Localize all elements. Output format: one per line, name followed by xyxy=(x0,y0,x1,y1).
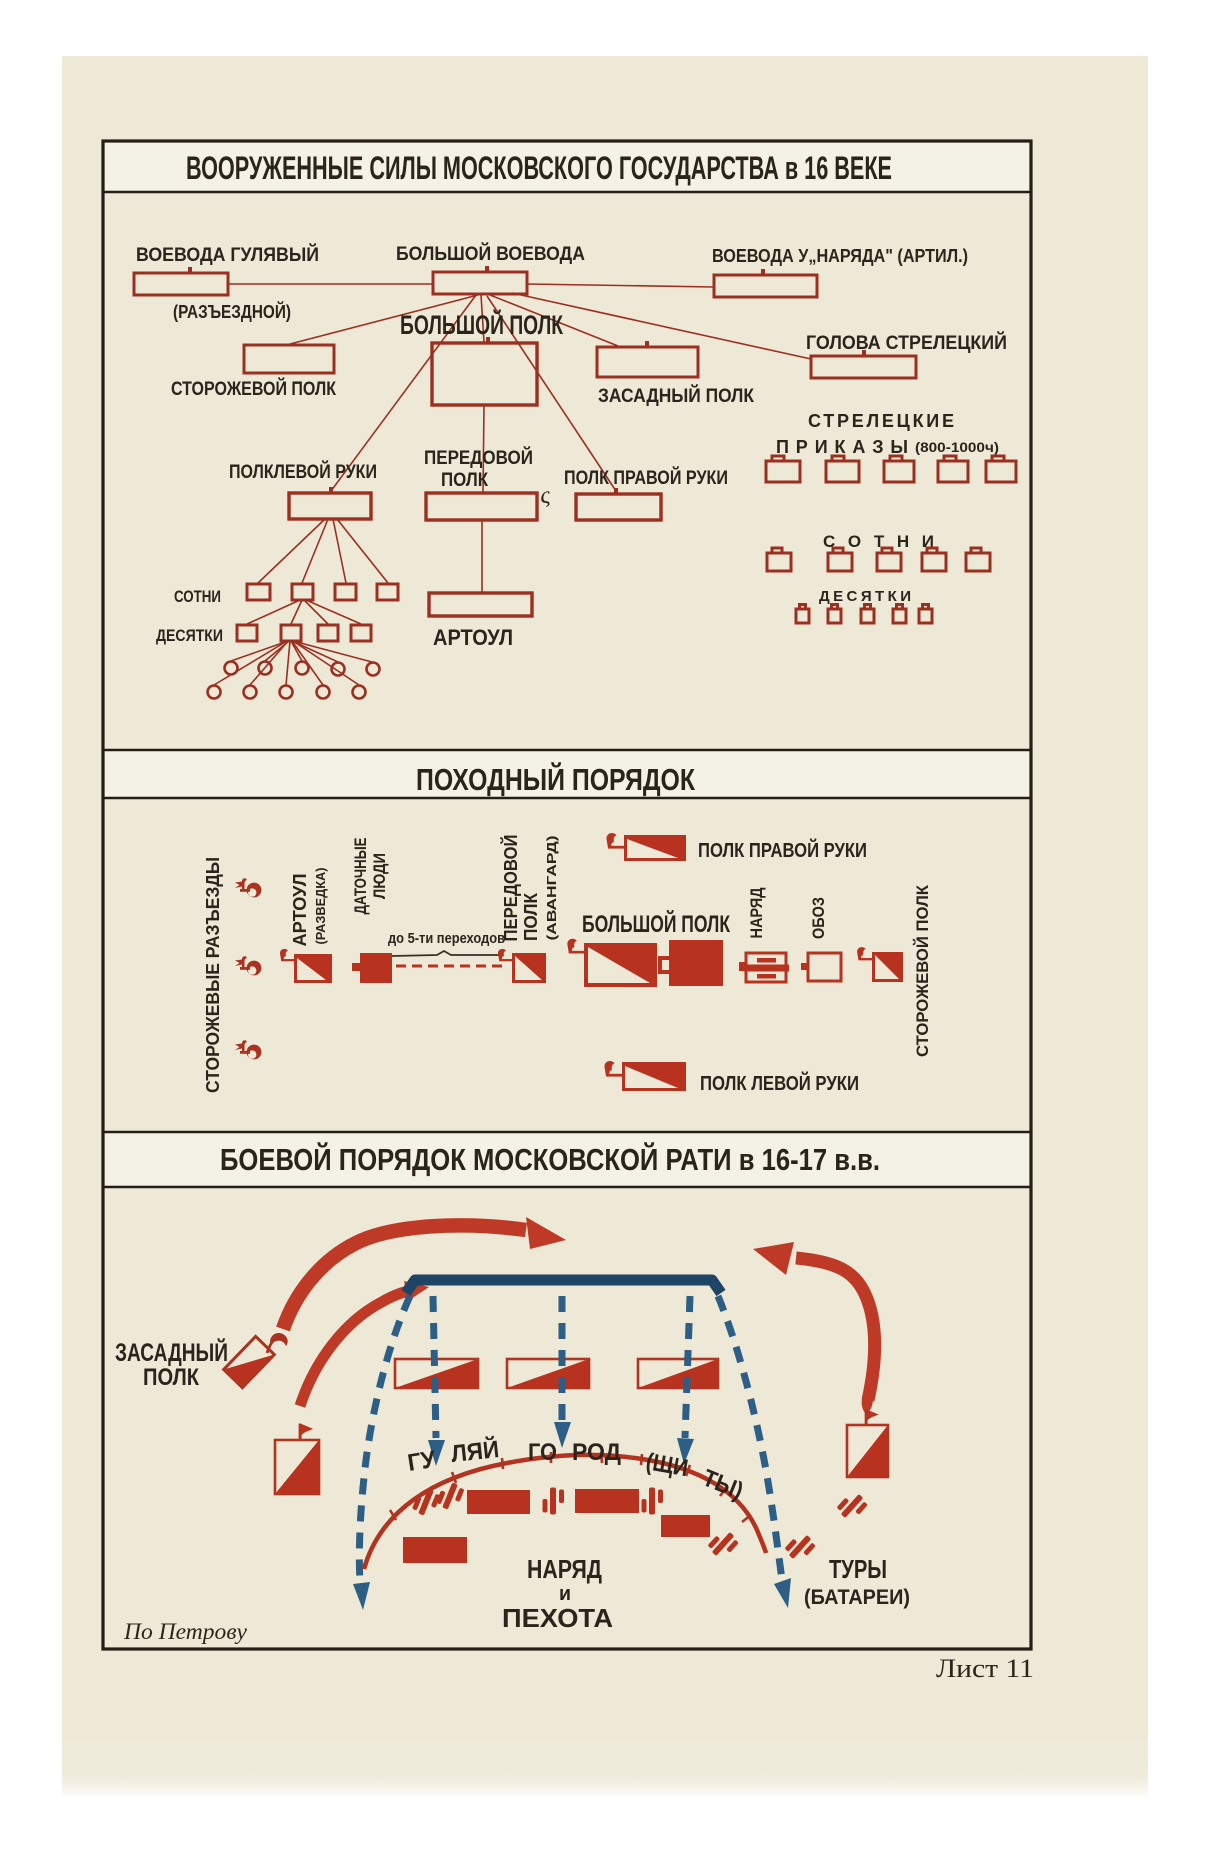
svg-text:СТОРОЖЕВЫЕ РАЗЪЕЗДЫ: СТОРОЖЕВЫЕ РАЗЪЕЗДЫ xyxy=(203,857,223,1093)
svg-text:(АВАНГАРД): (АВАНГАРД) xyxy=(544,836,559,941)
svg-text:АРТОУЛ: АРТОУЛ xyxy=(433,625,513,650)
svg-text:ПОЛК: ПОЛК xyxy=(441,470,488,491)
svg-text:ЗАСАДНЫЙ: ЗАСАДНЫЙ xyxy=(115,1337,228,1367)
svg-text:(БАТАРЕИ): (БАТАРЕИ) xyxy=(804,1586,910,1609)
svg-text:ЛЯЙ: ЛЯЙ xyxy=(450,1435,501,1468)
svg-text:ОБОЗ: ОБОЗ xyxy=(809,897,828,939)
svg-text:ПОЛКЛЕВОЙ РУКИ: ПОЛКЛЕВОЙ РУКИ xyxy=(229,461,377,483)
svg-text:НАРЯД: НАРЯД xyxy=(747,888,766,939)
svg-text:СОТНИ: СОТНИ xyxy=(174,587,221,606)
svg-text:ГО: ГО xyxy=(528,1439,557,1466)
svg-text:ЛЮДИ: ЛЮДИ xyxy=(370,853,389,899)
svg-text:ВОЕВОДА ГУЛЯВЫЙ: ВОЕВОДА ГУЛЯВЫЙ xyxy=(136,244,319,266)
svg-text:ВОЕВОДА У„НАРЯДА" (АРТИЛ.): ВОЕВОДА У„НАРЯДА" (АРТИЛ.) xyxy=(712,246,968,266)
svg-text:По Петрову: По Петрову xyxy=(123,1619,248,1644)
svg-text:Лист 11: Лист 11 xyxy=(936,1654,1034,1683)
svg-text:(РАЗВЕДКА): (РАЗВЕДКА) xyxy=(313,868,328,945)
svg-text:БОЕВОЙ ПОРЯДОК МОСКОВСКОЙ РАТИ: БОЕВОЙ ПОРЯДОК МОСКОВСКОЙ РАТИ в 16-17 в… xyxy=(220,1141,880,1177)
svg-text:РОД: РОД xyxy=(572,1439,621,1466)
svg-text:до 5-ти переходов: до 5-ти переходов xyxy=(388,930,505,947)
svg-text:ПЕХОТА: ПЕХОТА xyxy=(502,1603,613,1633)
svg-text:ПОЛК ЛЕВОЙ РУКИ: ПОЛК ЛЕВОЙ РУКИ xyxy=(700,1071,859,1095)
svg-text:БОЛЬШОЙ ВОЕВОДА: БОЛЬШОЙ ВОЕВОДА xyxy=(396,243,585,265)
svg-text:ПОЛК: ПОЛК xyxy=(143,1364,199,1391)
svg-text:и: и xyxy=(559,1583,571,1605)
svg-text:БОЛЬШОЙ ПОЛК: БОЛЬШОЙ ПОЛК xyxy=(400,309,563,340)
svg-text:ДЕСЯТКИ: ДЕСЯТКИ xyxy=(156,626,223,645)
svg-text:ВООРУЖЕННЫЕ СИЛЫ МОСКОВСКОГО Г: ВООРУЖЕННЫЕ СИЛЫ МОСКОВСКОГО ГОСУДАРСТВА… xyxy=(186,150,892,186)
svg-text:ПОЛК ПРАВОЙ РУКИ: ПОЛК ПРАВОЙ РУКИ xyxy=(564,467,728,489)
svg-text:ДАТОЧНЫЕ: ДАТОЧНЫЕ xyxy=(351,838,370,915)
svg-text:(800-1000ч): (800-1000ч) xyxy=(915,439,999,455)
svg-text:(РАЗЪЕЗДНОЙ): (РАЗЪЕЗДНОЙ) xyxy=(173,301,291,322)
svg-text:АРТОУЛ: АРТОУЛ xyxy=(290,874,310,947)
svg-text:СТРЕЛЕЦКИЕ: СТРЕЛЕЦКИЕ xyxy=(808,411,954,431)
svg-text:ПОЛК: ПОЛК xyxy=(521,892,541,941)
svg-text:ПОХОДНЫЙ ПОРЯДОК: ПОХОДНЫЙ ПОРЯДОК xyxy=(416,761,695,797)
svg-text:ТУРЫ: ТУРЫ xyxy=(829,1554,887,1584)
svg-text:ПОЛК ПРАВОЙ РУКИ: ПОЛК ПРАВОЙ РУКИ xyxy=(698,838,867,862)
svg-text:ЗАСАДНЫЙ ПОЛК: ЗАСАДНЫЙ ПОЛК xyxy=(598,385,754,407)
svg-text:ПЕРЕДОВОЙ: ПЕРЕДОВОЙ xyxy=(500,835,521,942)
svg-text:СТОРОЖЕВОЙ ПОЛК: СТОРОЖЕВОЙ ПОЛК xyxy=(171,378,336,400)
svg-text:ПЕРЕДОВОЙ: ПЕРЕДОВОЙ xyxy=(424,447,533,469)
svg-text:БОЛЬШОЙ ПОЛК: БОЛЬШОЙ ПОЛК xyxy=(582,910,730,938)
svg-text:ГУ: ГУ xyxy=(406,1446,439,1477)
svg-text:ГОЛОВА СТРЕЛЕЦКИЙ: ГОЛОВА СТРЕЛЕЦКИЙ xyxy=(806,332,1007,354)
svg-text:НАРЯД: НАРЯД xyxy=(527,1554,602,1584)
svg-text:СТОРОЖЕВОЙ ПОЛК: СТОРОЖЕВОЙ ПОЛК xyxy=(913,884,932,1057)
